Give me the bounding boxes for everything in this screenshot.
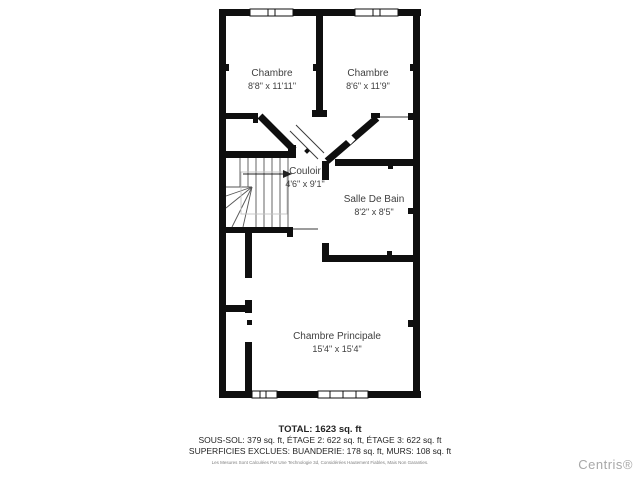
total-area: TOTAL: 1623 sq. ft	[0, 424, 640, 435]
room-label-couloir: Couloir 4'6" x 9'1"	[285, 166, 324, 190]
room-label-salle-de-bain: Salle De Bain 8'2" x 8'5"	[344, 194, 405, 218]
room-dimensions: 8'2" x 8'5"	[344, 206, 405, 218]
room-name: Chambre Principale	[293, 331, 381, 343]
room-label-chambre-left: Chambre 8'8" x 11'11"	[248, 68, 296, 92]
excluded-areas: SUPERFICIES EXCLUES: BUANDERIE: 178 sq. …	[0, 446, 640, 457]
room-name: Salle De Bain	[344, 194, 405, 206]
room-name: Chambre	[248, 68, 296, 80]
room-label-chambre-principale: Chambre Principale 15'4" x 15'4"	[293, 331, 381, 355]
room-name: Couloir	[285, 166, 324, 178]
summary-block: TOTAL: 1623 sq. ft SOUS-SOL: 379 sq. ft,…	[0, 424, 640, 466]
floorplan-page: Chambre 8'8" x 11'11" Chambre 8'6" x 11'…	[0, 0, 640, 480]
disclaimer: Les Mesures Sont Calculées Par Une Techn…	[0, 460, 640, 466]
room-dimensions: 15'4" x 15'4"	[293, 343, 381, 355]
floorplan-drawing	[0, 0, 640, 480]
room-dimensions: 8'8" x 11'11"	[248, 80, 296, 92]
room-dimensions: 8'6" x 11'9"	[346, 80, 390, 92]
floor-areas: SOUS-SOL: 379 sq. ft, ÉTAGE 2: 622 sq. f…	[0, 435, 640, 446]
centris-watermark: Centris®	[578, 457, 633, 472]
staircase	[226, 158, 288, 227]
room-name: Chambre	[346, 68, 390, 80]
room-dimensions: 4'6" x 9'1"	[285, 178, 324, 190]
room-label-chambre-right: Chambre 8'6" x 11'9"	[346, 68, 390, 92]
